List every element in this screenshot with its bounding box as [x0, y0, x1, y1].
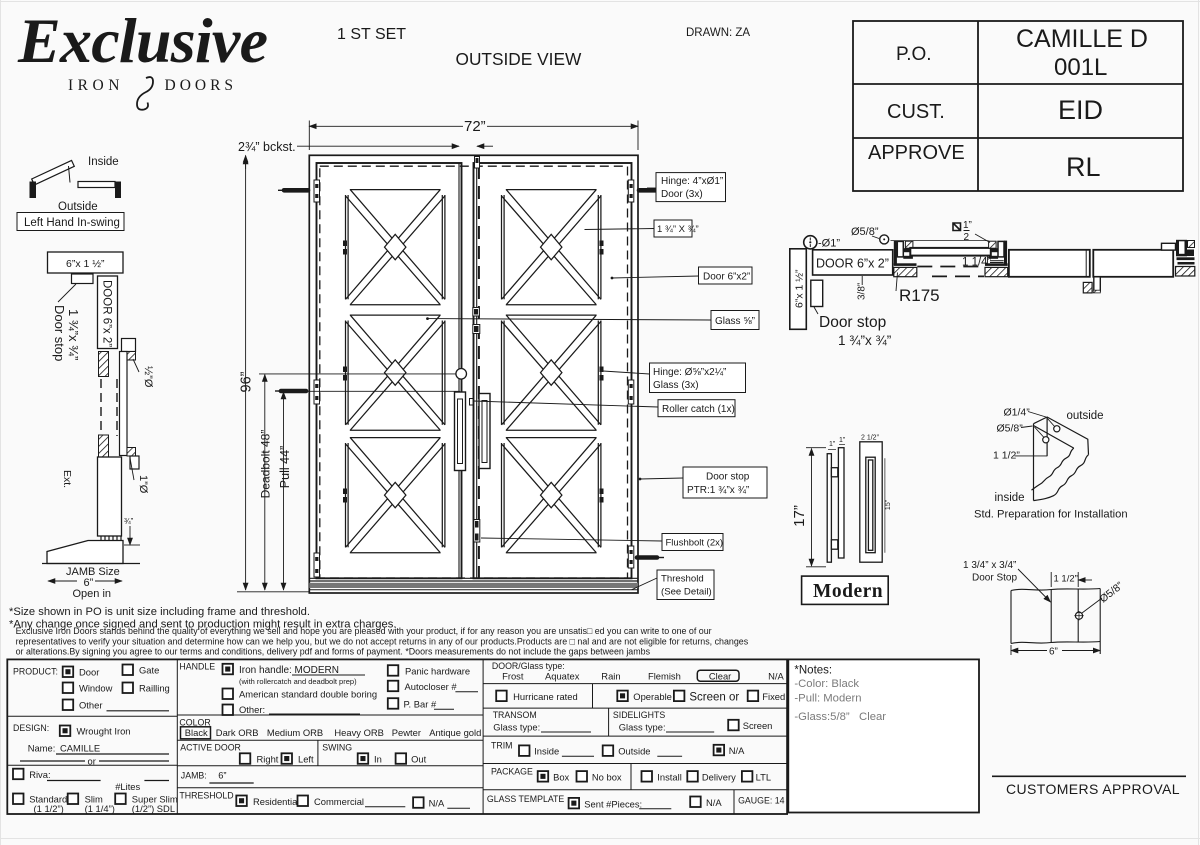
- svg-text:Glass type:: Glass type:: [493, 722, 540, 733]
- svg-text:SIDELIGHTS: SIDELIGHTS: [613, 710, 665, 720]
- svg-text:(with rollercatch and deadbolt: (with rollercatch and deadbolt prep): [239, 677, 357, 686]
- svg-text:6”x 1 ½”: 6”x 1 ½”: [66, 258, 105, 270]
- svg-text:Out: Out: [411, 753, 427, 764]
- svg-text:Left Hand In-swing: Left Hand In-swing: [24, 217, 120, 229]
- svg-text:¾”: ¾”: [124, 517, 134, 526]
- svg-text:Sent #Pieces:: Sent #Pieces:: [584, 798, 642, 809]
- svg-text:Heavy ORB: Heavy ORB: [334, 727, 384, 738]
- svg-text:outside: outside: [1067, 410, 1104, 422]
- svg-text:N/A: N/A: [429, 798, 445, 809]
- svg-text:17”: 17”: [791, 505, 808, 527]
- svg-text:CAMILLE D: CAMILLE D: [1016, 25, 1148, 53]
- svg-text:In: In: [374, 753, 382, 764]
- svg-text:Roller catch (1x): Roller catch (1x): [662, 404, 735, 415]
- svg-text:No box: No box: [592, 771, 622, 782]
- svg-text:Door stop: Door stop: [819, 314, 886, 331]
- svg-text:#Lites: #Lites: [115, 781, 140, 792]
- svg-text:Operable: Operable: [633, 691, 672, 702]
- svg-text:Door 6”x2”: Door 6”x2”: [703, 272, 750, 283]
- svg-text:Clear: Clear: [709, 671, 731, 682]
- svg-text:Ø5/8”: Ø5/8”: [1097, 579, 1125, 605]
- svg-text:DOOR 6”x 2”: DOOR 6”x 2”: [816, 257, 889, 271]
- svg-text:TRANSOM: TRANSOM: [493, 710, 537, 720]
- svg-text:PTR:1 ¾”x ¾”: PTR:1 ¾”x ¾”: [687, 485, 749, 496]
- svg-text:Threshold: Threshold: [661, 574, 704, 585]
- svg-text:Glass type:: Glass type:: [619, 722, 666, 733]
- svg-text:-Pull: Modern: -Pull: Modern: [794, 693, 861, 705]
- svg-text:Right: Right: [257, 753, 279, 764]
- svg-text:Door: Door: [79, 667, 99, 678]
- svg-text:2¾” bckst.: 2¾” bckst.: [238, 140, 296, 154]
- svg-text:Door Stop: Door Stop: [972, 573, 1017, 584]
- svg-text:(1 1/4”): (1 1/4”): [85, 803, 115, 814]
- svg-text:Outside: Outside: [58, 201, 98, 213]
- svg-text:Wrought Iron: Wrought Iron: [77, 726, 131, 737]
- svg-text:Screen: Screen: [743, 720, 773, 731]
- svg-text:Delivery: Delivery: [702, 771, 736, 782]
- svg-text:Flushbolt (2x): Flushbolt (2x): [666, 538, 724, 549]
- svg-text:COLOR: COLOR: [179, 718, 210, 728]
- svg-text:Std. Preparation for Installat: Std. Preparation for Installation: [974, 509, 1128, 521]
- svg-text:Exclusive Iron Doors stands be: Exclusive Iron Doors stands behind the q…: [16, 626, 712, 636]
- svg-text:-Color: Black: -Color: Black: [794, 678, 859, 690]
- svg-text:N/A: N/A: [706, 797, 722, 808]
- svg-text:(1/2”) SDL: (1/2”) SDL: [132, 803, 175, 814]
- svg-text:representatives to verify your: representatives to verify your situation…: [16, 636, 749, 646]
- svg-text:DESIGN:: DESIGN:: [13, 723, 49, 733]
- svg-text:1 ¾” X ¾”: 1 ¾” X ¾”: [657, 224, 699, 235]
- svg-text:Door stop: Door stop: [706, 472, 750, 483]
- svg-text:Exclusive: Exclusive: [17, 5, 268, 76]
- svg-text:Commercial: Commercial: [314, 796, 364, 807]
- svg-text:Hinge: Ø⅝”x2¼”: Hinge: Ø⅝”x2¼”: [653, 366, 726, 378]
- svg-text:1”: 1”: [829, 441, 836, 448]
- svg-text:SWING: SWING: [322, 743, 352, 753]
- svg-text:P. Bar #: P. Bar #: [404, 699, 437, 710]
- svg-text:RL: RL: [1066, 152, 1101, 182]
- svg-text:*Notes:: *Notes:: [794, 665, 832, 677]
- svg-text:IRON: IRON: [68, 77, 124, 94]
- svg-text:Name:: Name:: [28, 743, 56, 754]
- svg-text:Hurricane rated: Hurricane rated: [513, 691, 578, 702]
- svg-text:PRODUCT:: PRODUCT:: [13, 667, 58, 677]
- svg-text:Box: Box: [553, 771, 569, 782]
- svg-text:*Size shown in PO is unit size: *Size shown in PO is unit size including…: [9, 606, 310, 618]
- svg-text:GAUGE: 14: GAUGE: 14: [738, 796, 785, 806]
- svg-text:(See Detail): (See Detail): [661, 587, 712, 598]
- svg-text:Railling: Railling: [139, 683, 170, 694]
- svg-text:Hinge: 4”xØ1”: Hinge: 4”xØ1”: [661, 176, 723, 187]
- svg-text:or alterations.By signing you: or alterations.By signing you agree to o…: [16, 647, 651, 657]
- svg-text:Other:: Other:: [239, 704, 265, 715]
- svg-text:Glass (3x): Glass (3x): [653, 380, 699, 391]
- svg-text:2 1/2”: 2 1/2”: [861, 435, 880, 442]
- svg-text:P.O.: P.O.: [896, 44, 932, 65]
- svg-text:OUTSIDE VIEW: OUTSIDE VIEW: [456, 49, 582, 69]
- svg-text:Inside: Inside: [88, 156, 119, 168]
- svg-text:Window: Window: [79, 683, 113, 694]
- svg-text:Open in: Open in: [73, 588, 112, 600]
- svg-text:Fixed: Fixed: [762, 691, 785, 702]
- svg-text:6”x 1 ½”: 6”x 1 ½”: [794, 269, 806, 308]
- svg-text:Aquatex: Aquatex: [545, 671, 580, 682]
- svg-text:or: or: [88, 756, 96, 767]
- svg-text:-Glass:5/8” Clear: -Glass:5/8” Clear: [794, 711, 886, 723]
- svg-text:Outside: Outside: [618, 746, 650, 757]
- svg-text:HANDLE: HANDLE: [179, 662, 215, 672]
- svg-text:ACTIVE DOOR: ACTIVE DOOR: [180, 743, 241, 753]
- svg-text:Residential: Residential: [253, 796, 299, 807]
- svg-text:1”: 1”: [963, 220, 972, 231]
- svg-text:Antique gold: Antique gold: [429, 727, 481, 738]
- svg-text:6”: 6”: [1049, 647, 1058, 658]
- svg-text:N/A: N/A: [768, 671, 784, 682]
- svg-text:15”: 15”: [885, 499, 892, 510]
- svg-text:Rain: Rain: [601, 671, 620, 682]
- svg-text:American standard double borin: American standard double boring: [239, 689, 377, 700]
- svg-text:-Ø1”: -Ø1”: [818, 238, 840, 250]
- svg-text:Ø1/4”: Ø1/4”: [1004, 407, 1031, 419]
- svg-text:96”: 96”: [239, 371, 255, 392]
- svg-text:Door (3x): Door (3x): [661, 189, 703, 200]
- svg-text:Door stop: Door stop: [52, 305, 67, 361]
- svg-text:001L: 001L: [1054, 54, 1107, 81]
- svg-text:Frost: Frost: [502, 671, 524, 682]
- svg-text:GLASS TEMPLATE: GLASS TEMPLATE: [487, 794, 565, 804]
- svg-text:3/8”: 3/8”: [857, 283, 868, 300]
- svg-text:1 ¾”x ¾”: 1 ¾”x ¾”: [838, 333, 891, 348]
- svg-text:½”Ø: ½”Ø: [142, 366, 154, 388]
- svg-text:THRESHOLD: THRESHOLD: [179, 791, 233, 801]
- svg-text:Deadbolt 48”: Deadbolt 48”: [259, 430, 273, 499]
- svg-text:72”: 72”: [464, 118, 486, 135]
- svg-text:Other: Other: [79, 700, 102, 711]
- svg-text:Ø5/8”: Ø5/8”: [851, 226, 879, 238]
- svg-text:CUSTOMERS APPROVAL: CUSTOMERS APPROVAL: [1006, 781, 1180, 797]
- svg-text:N/A: N/A: [729, 745, 745, 756]
- svg-text:Install: Install: [657, 771, 682, 782]
- svg-text:Flemish: Flemish: [648, 671, 681, 682]
- svg-text:DOOR/Glass type:: DOOR/Glass type:: [492, 661, 565, 671]
- svg-text:Ø5/8”: Ø5/8”: [997, 423, 1024, 435]
- svg-text:Medium ORB: Medium ORB: [267, 727, 323, 738]
- svg-text:LTL: LTL: [756, 771, 771, 782]
- svg-text:Autocloser #: Autocloser #: [405, 681, 458, 692]
- svg-text:1 ST SET: 1 ST SET: [337, 26, 406, 43]
- svg-text:DOORS: DOORS: [165, 77, 238, 94]
- svg-text:2: 2: [964, 232, 970, 243]
- svg-text:JAMB:: JAMB:: [181, 771, 207, 781]
- svg-text:Pewter: Pewter: [392, 727, 421, 738]
- svg-text:CUST.: CUST.: [887, 101, 945, 123]
- svg-text:Glass ⅝”: Glass ⅝”: [715, 316, 755, 327]
- svg-text:Iron handle:: Iron handle:: [239, 665, 292, 676]
- svg-text:Dark ORB: Dark ORB: [216, 727, 259, 738]
- svg-text:TRIM: TRIM: [491, 741, 513, 751]
- svg-text:inside: inside: [995, 492, 1025, 504]
- svg-text:PACKAGE: PACKAGE: [491, 767, 533, 777]
- svg-text:(1 1/2”): (1 1/2”): [34, 803, 64, 814]
- svg-text:Ext.: Ext.: [61, 470, 73, 488]
- svg-text:6”: 6”: [218, 770, 226, 781]
- svg-text:1 ¾”x ¾”: 1 ¾”x ¾”: [66, 309, 81, 360]
- svg-text:DOOR 6”x 2”: DOOR 6”x 2”: [101, 280, 113, 347]
- svg-text:1 1/2”: 1 1/2”: [1054, 574, 1078, 585]
- svg-text:1”: 1”: [839, 437, 846, 444]
- svg-text:CAMILLE: CAMILLE: [60, 743, 100, 754]
- svg-text:Pull 44”: Pull 44”: [278, 446, 292, 488]
- svg-text:EID: EID: [1058, 95, 1103, 125]
- svg-text:1”Ø: 1”Ø: [137, 475, 149, 494]
- svg-text:Inside: Inside: [534, 746, 559, 757]
- svg-text:Modern: Modern: [813, 581, 883, 602]
- svg-text:1 3/4” x 3/4”: 1 3/4” x 3/4”: [963, 560, 1016, 571]
- svg-text:DRAWN: ZA: DRAWN: ZA: [686, 27, 750, 39]
- svg-text:Riva:: Riva:: [29, 769, 50, 780]
- svg-text:Panic hardware: Panic hardware: [405, 666, 470, 677]
- svg-text:R175: R175: [899, 286, 940, 305]
- svg-text:Gate: Gate: [139, 665, 159, 676]
- svg-text:Left: Left: [298, 753, 314, 764]
- svg-text:Screen or: Screen or: [689, 691, 739, 703]
- svg-text:Black: Black: [185, 727, 208, 738]
- svg-text:APPROVE: APPROVE: [868, 142, 965, 164]
- svg-text:MODERN: MODERN: [295, 665, 339, 676]
